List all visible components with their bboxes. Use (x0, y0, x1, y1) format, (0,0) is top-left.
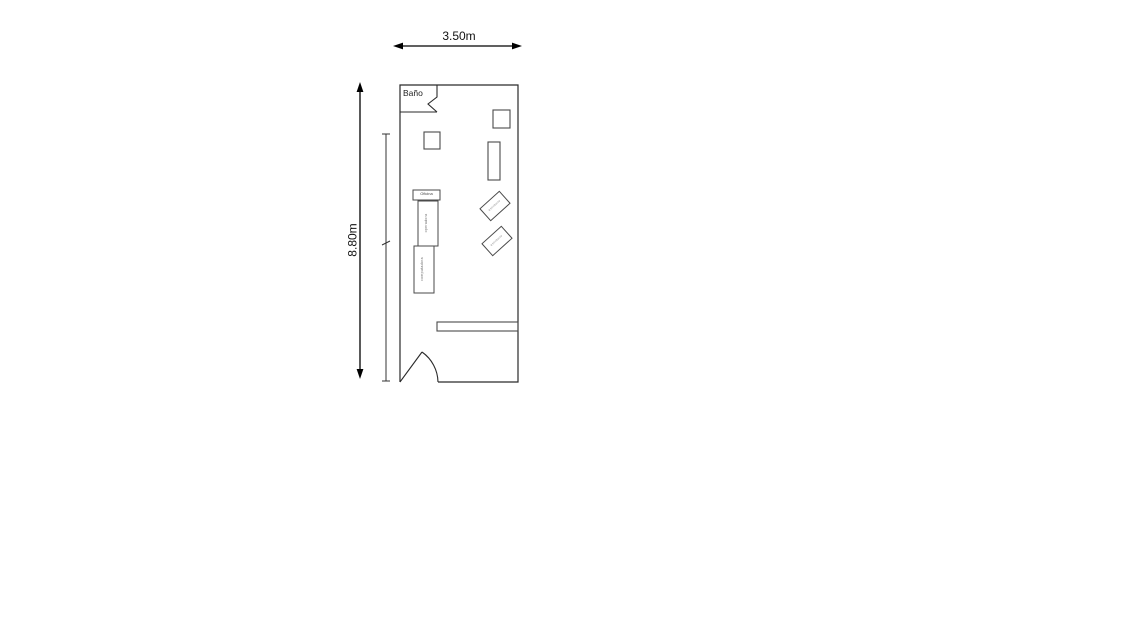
width-dimension-arrow (393, 43, 522, 50)
counter-bar (437, 322, 518, 331)
office-label: Oficina (413, 191, 440, 196)
tall-shelf-rect (488, 142, 500, 180)
entry-door-leaf (400, 352, 422, 382)
height-dimension-label: 8.80m (346, 222, 360, 259)
small-square-left (424, 132, 440, 149)
width-dimension-label: 3.50m (397, 29, 521, 43)
vertical-desk-2-label: computadora (420, 248, 428, 290)
small-square-topright (493, 110, 510, 128)
entry-door-arc (422, 352, 438, 382)
floor-plan-page: 3.50m 8.80m Baño Oficina operadora compu… (0, 0, 1138, 640)
vertical-desk-1-label: operadora (424, 202, 432, 244)
bathroom-label: Baño (403, 88, 423, 98)
bathroom-door-notch (428, 85, 437, 112)
entry-door (400, 352, 438, 382)
inner-dimension-line (382, 134, 390, 381)
floor-plan-drawing (0, 0, 1138, 640)
